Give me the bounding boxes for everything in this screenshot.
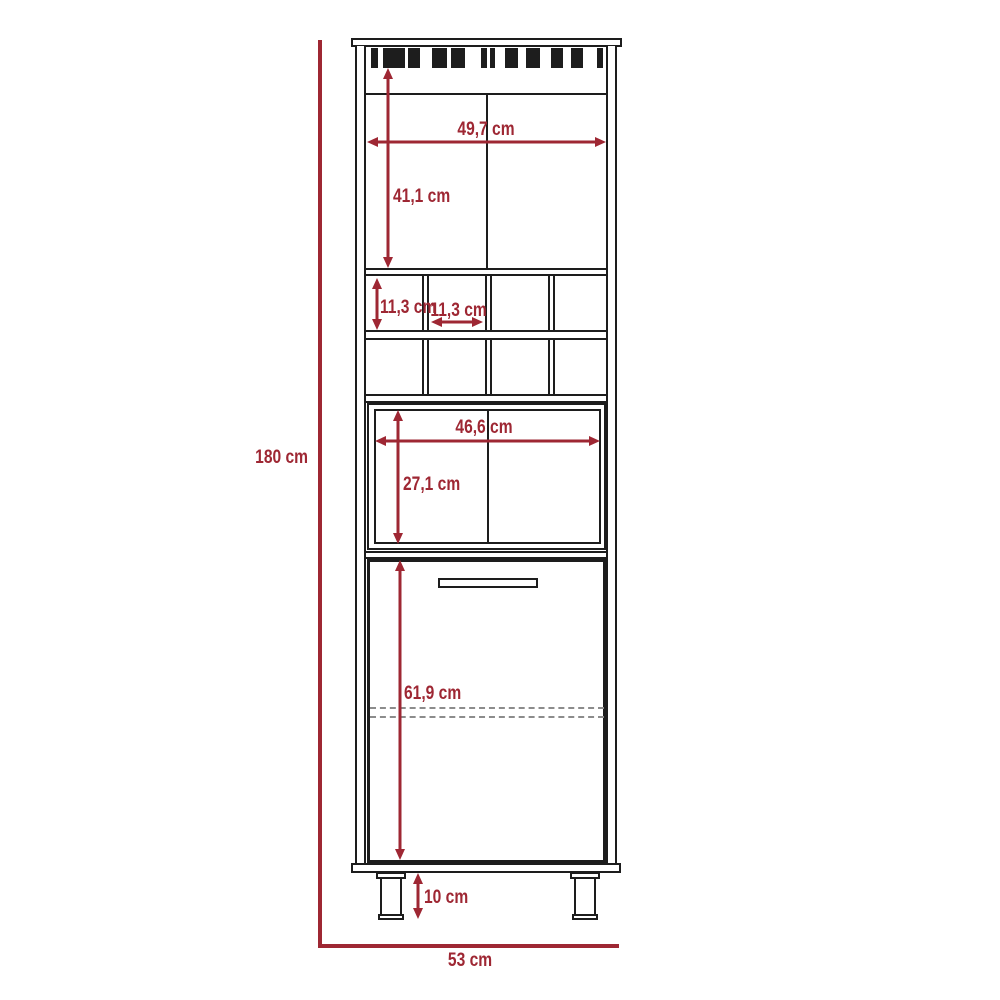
right-leg-foot [572, 914, 598, 920]
glass-rack-slat [383, 48, 405, 68]
hidden-shelf-dashed-line [370, 707, 604, 709]
furniture-dimension-diagram: 180 cm 53 cm 49,7 cm 41,1 cm 11,3 cm 11,… [0, 0, 1000, 1000]
dim-label-middle-height: 27,1 cm [403, 475, 460, 494]
dim-arrow-door-height [395, 560, 405, 860]
glass-rack-slat [571, 48, 583, 68]
wine-cubby-divider [548, 276, 555, 330]
cabinet-top-board [351, 38, 622, 47]
cabinet-left-side-panel [355, 46, 366, 864]
dim-label-overall-width: 53 cm [429, 951, 511, 970]
glass-rack-slat [408, 48, 420, 68]
glass-rack-slat [505, 48, 518, 68]
dim-line-overall-height [318, 40, 322, 948]
cabinet-right-side-panel [606, 46, 617, 864]
dim-arrow-middle-height [393, 410, 403, 544]
glass-rack-slat [432, 48, 447, 68]
wine-cubby-divider [485, 340, 492, 394]
shelf-board [366, 268, 606, 276]
glass-rack-slat [551, 48, 563, 68]
shelf-board [366, 551, 606, 559]
door-handle [438, 578, 538, 588]
glass-rack-slat [597, 48, 603, 68]
dim-label-cubby-width: 11,3 cm [430, 301, 479, 320]
glass-rack-slat [526, 48, 540, 68]
left-leg-body [380, 877, 402, 916]
shelf-board [366, 394, 606, 403]
dim-label-middle-width: 46,6 cm [443, 418, 525, 437]
dim-label-door-height: 61,9 cm [404, 684, 461, 703]
dim-label-cubby-height: 11,3 cm [380, 298, 436, 317]
right-leg-body [574, 877, 596, 916]
hidden-shelf-dashed-line [370, 716, 604, 718]
glass-rack-slat [451, 48, 465, 68]
dim-arrow-leg-height [413, 873, 423, 919]
dim-line-overall-width [318, 944, 619, 948]
left-leg-foot [378, 914, 404, 920]
dim-label-overall-height: 180 cm [242, 448, 308, 467]
glass-rack-slat [371, 48, 378, 68]
glass-rack-slat [490, 48, 495, 68]
glass-rack-slat [481, 48, 487, 68]
dim-label-upper-height: 41,1 cm [393, 187, 450, 206]
wine-cubby-divider [422, 340, 429, 394]
dim-arrow-upper-height [383, 68, 393, 268]
shelf-board [366, 330, 606, 340]
dim-label-upper-width: 49,7 cm [445, 120, 527, 139]
dim-label-leg-height: 10 cm [424, 888, 468, 907]
wine-cubby-divider [548, 340, 555, 394]
